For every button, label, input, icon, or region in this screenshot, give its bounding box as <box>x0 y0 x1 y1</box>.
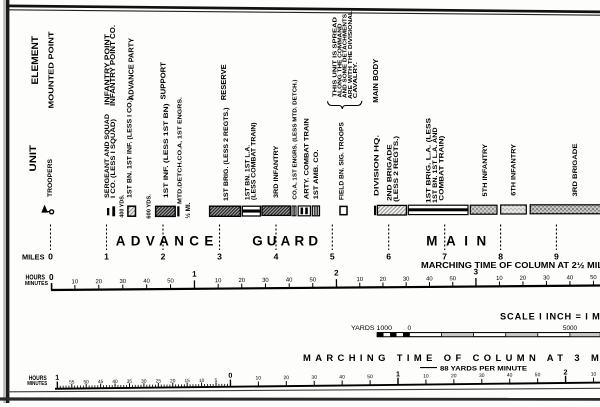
svg-text:RESERVE: RESERVE <box>219 64 228 100</box>
svg-text:10: 10 <box>356 277 363 283</box>
svg-text:1ST BN. 1ST INF. (LESS I CO.): 1ST BN. 1ST INF. (LESS I CO.) <box>126 98 133 198</box>
svg-text:50: 50 <box>309 277 316 283</box>
svg-text:MARCHING TIME OF COLUMN AT 2½: MARCHING TIME OF COLUMN AT 2½ MIL <box>421 261 600 270</box>
svg-text:MINUTES: MINUTES <box>27 381 48 387</box>
svg-text:ADVANCE: ADVANCE <box>116 234 219 249</box>
svg-text:50: 50 <box>83 379 89 385</box>
svg-text:8: 8 <box>498 252 503 262</box>
svg-text:5: 5 <box>330 252 335 262</box>
svg-text:1ST INF. (LESS 1ST BN): 1ST INF. (LESS 1ST BN) <box>163 104 170 199</box>
svg-text:7: 7 <box>442 252 447 262</box>
svg-text:FIELD BN. SIG. TROOPS: FIELD BN. SIG. TROOPS <box>338 122 345 201</box>
svg-text:20: 20 <box>283 375 289 381</box>
svg-text:400 YDS.: 400 YDS. <box>119 194 125 218</box>
svg-text:ADVANCE PARTY: ADVANCE PARTY <box>127 38 136 100</box>
svg-text:CAVALRY.: CAVALRY. <box>353 62 359 99</box>
svg-text:20: 20 <box>170 378 176 384</box>
svg-text:10: 10 <box>423 374 429 380</box>
svg-text:1ST AMB. CO.: 1ST AMB. CO. <box>313 149 320 199</box>
svg-text:0: 0 <box>49 273 54 282</box>
svg-text:MAIN: MAIN <box>426 234 495 249</box>
svg-text:40: 40 <box>112 379 118 385</box>
svg-text:3RD BRIGADE: 3RD BRIGADE <box>572 143 579 197</box>
svg-text:½ MI.: ½ MI. <box>185 202 192 218</box>
svg-text:5TH INFANTRY: 5TH INFANTRY <box>482 143 489 196</box>
svg-text:50: 50 <box>367 374 373 380</box>
svg-text:20: 20 <box>520 276 527 282</box>
svg-text:MTD.DETCH.CO.A, 1ST ENGRS.: MTD.DETCH.CO.A, 1ST ENGRS. <box>177 97 183 204</box>
svg-text:40: 40 <box>507 373 513 379</box>
svg-text:6: 6 <box>386 252 391 262</box>
svg-text:10: 10 <box>72 279 79 285</box>
svg-text:50: 50 <box>590 275 597 281</box>
svg-text:CO.A, 1ST ENGRS. (LESS MTD. DE: CO.A, 1ST ENGRS. (LESS MTD. DETCH.) <box>293 80 299 200</box>
svg-text:5000: 5000 <box>563 325 578 332</box>
svg-text:55: 55 <box>69 379 75 385</box>
svg-text:(LESS COMBAT TRAIN): (LESS COMBAT TRAIN) <box>251 122 258 200</box>
svg-text:35: 35 <box>127 379 133 385</box>
svg-text:COMBAT TRAIN): COMBAT TRAIN) <box>439 136 446 201</box>
svg-text:6TH INFANTRY: 6TH INFANTRY <box>511 143 518 195</box>
svg-text:ELEMENT: ELEMENT <box>30 36 41 85</box>
svg-text:1: 1 <box>104 252 109 262</box>
svg-text:30: 30 <box>311 375 317 381</box>
svg-text:10: 10 <box>199 378 205 384</box>
svg-text:5: 5 <box>215 378 218 384</box>
svg-text:10: 10 <box>496 276 503 282</box>
svg-text:10: 10 <box>255 375 261 381</box>
svg-text:TROOPERS: TROOPERS <box>47 159 54 197</box>
svg-text:4: 4 <box>274 252 279 262</box>
svg-text:88 YARDS PER MINUTE: 88 YARDS PER MINUTE <box>440 365 528 372</box>
svg-text:UNIT: UNIT <box>28 145 39 172</box>
svg-text:10: 10 <box>591 372 597 378</box>
svg-text:SCALE I INCH = I MILE: SCALE I INCH = I MILE <box>500 312 600 322</box>
svg-text:50: 50 <box>449 276 456 282</box>
svg-text:MARCHING TIME OF COLUMN AT 3 M: MARCHING TIME OF COLUMN AT 3 MI <box>303 352 600 363</box>
svg-text:40: 40 <box>426 276 433 282</box>
svg-text:30: 30 <box>141 379 147 385</box>
svg-text:40: 40 <box>339 374 345 380</box>
svg-text:INFANTRY POINT CO.: INFANTRY POINT CO. <box>110 25 117 106</box>
svg-text:MOUNTED POINT: MOUNTED POINT <box>47 31 56 109</box>
svg-text:SUPPORT: SUPPORT <box>159 61 168 99</box>
svg-text:40: 40 <box>567 275 574 281</box>
svg-text:40: 40 <box>286 278 293 284</box>
svg-text:1: 1 <box>192 270 197 279</box>
svg-text:45: 45 <box>98 379 104 385</box>
svg-text:1: 1 <box>55 373 59 382</box>
svg-text:MAIN BODY: MAIN BODY <box>371 59 380 103</box>
svg-text:30: 30 <box>403 277 410 283</box>
svg-text:DIVISION HQ.: DIVISION HQ. <box>373 135 380 196</box>
svg-text:2: 2 <box>161 252 166 262</box>
svg-text:0: 0 <box>228 371 232 380</box>
svg-text:3RD INFANTRY: 3RD INFANTRY <box>273 145 280 198</box>
svg-text:2: 2 <box>334 268 339 277</box>
svg-text:40: 40 <box>143 279 150 285</box>
svg-text:30: 30 <box>262 278 269 284</box>
svg-text:9: 9 <box>554 252 559 262</box>
svg-text:50: 50 <box>535 372 541 378</box>
svg-text:1ST BRIG. (LESS 2 REGTS.): 1ST BRIG. (LESS 2 REGTS.) <box>223 107 230 201</box>
svg-text:1: 1 <box>396 369 400 378</box>
svg-text:2: 2 <box>563 367 567 376</box>
svg-text:I CO. (LESS I SQUAD): I CO. (LESS I SQUAD) <box>110 119 117 198</box>
svg-text:MILES: MILES <box>22 253 45 262</box>
svg-text:600 YDS.: 600 YDS. <box>147 194 153 219</box>
svg-text:20: 20 <box>451 373 457 379</box>
svg-text:30: 30 <box>479 373 485 379</box>
svg-text:GUARD: GUARD <box>252 234 322 249</box>
svg-text:20: 20 <box>380 277 387 283</box>
svg-text:ARTY. COMBAT TRAIN: ARTY. COMBAT TRAIN <box>304 118 311 199</box>
svg-text:MINUTES: MINUTES <box>25 281 48 287</box>
svg-text:30: 30 <box>119 279 126 285</box>
svg-text:10: 10 <box>215 278 222 284</box>
svg-text:YARDS 1000: YARDS 1000 <box>351 325 393 332</box>
svg-text:0: 0 <box>408 325 412 332</box>
svg-text:25: 25 <box>156 378 162 384</box>
svg-text:3: 3 <box>474 267 479 276</box>
svg-text:30: 30 <box>543 276 550 282</box>
svg-text:(LESS 2 REGTS.): (LESS 2 REGTS.) <box>393 136 400 202</box>
svg-text:20: 20 <box>238 278 245 284</box>
svg-text:3: 3 <box>217 252 222 262</box>
svg-text:0: 0 <box>48 252 53 262</box>
svg-text:15: 15 <box>184 378 190 384</box>
svg-text:50: 50 <box>167 279 174 285</box>
svg-text:20: 20 <box>95 279 102 285</box>
